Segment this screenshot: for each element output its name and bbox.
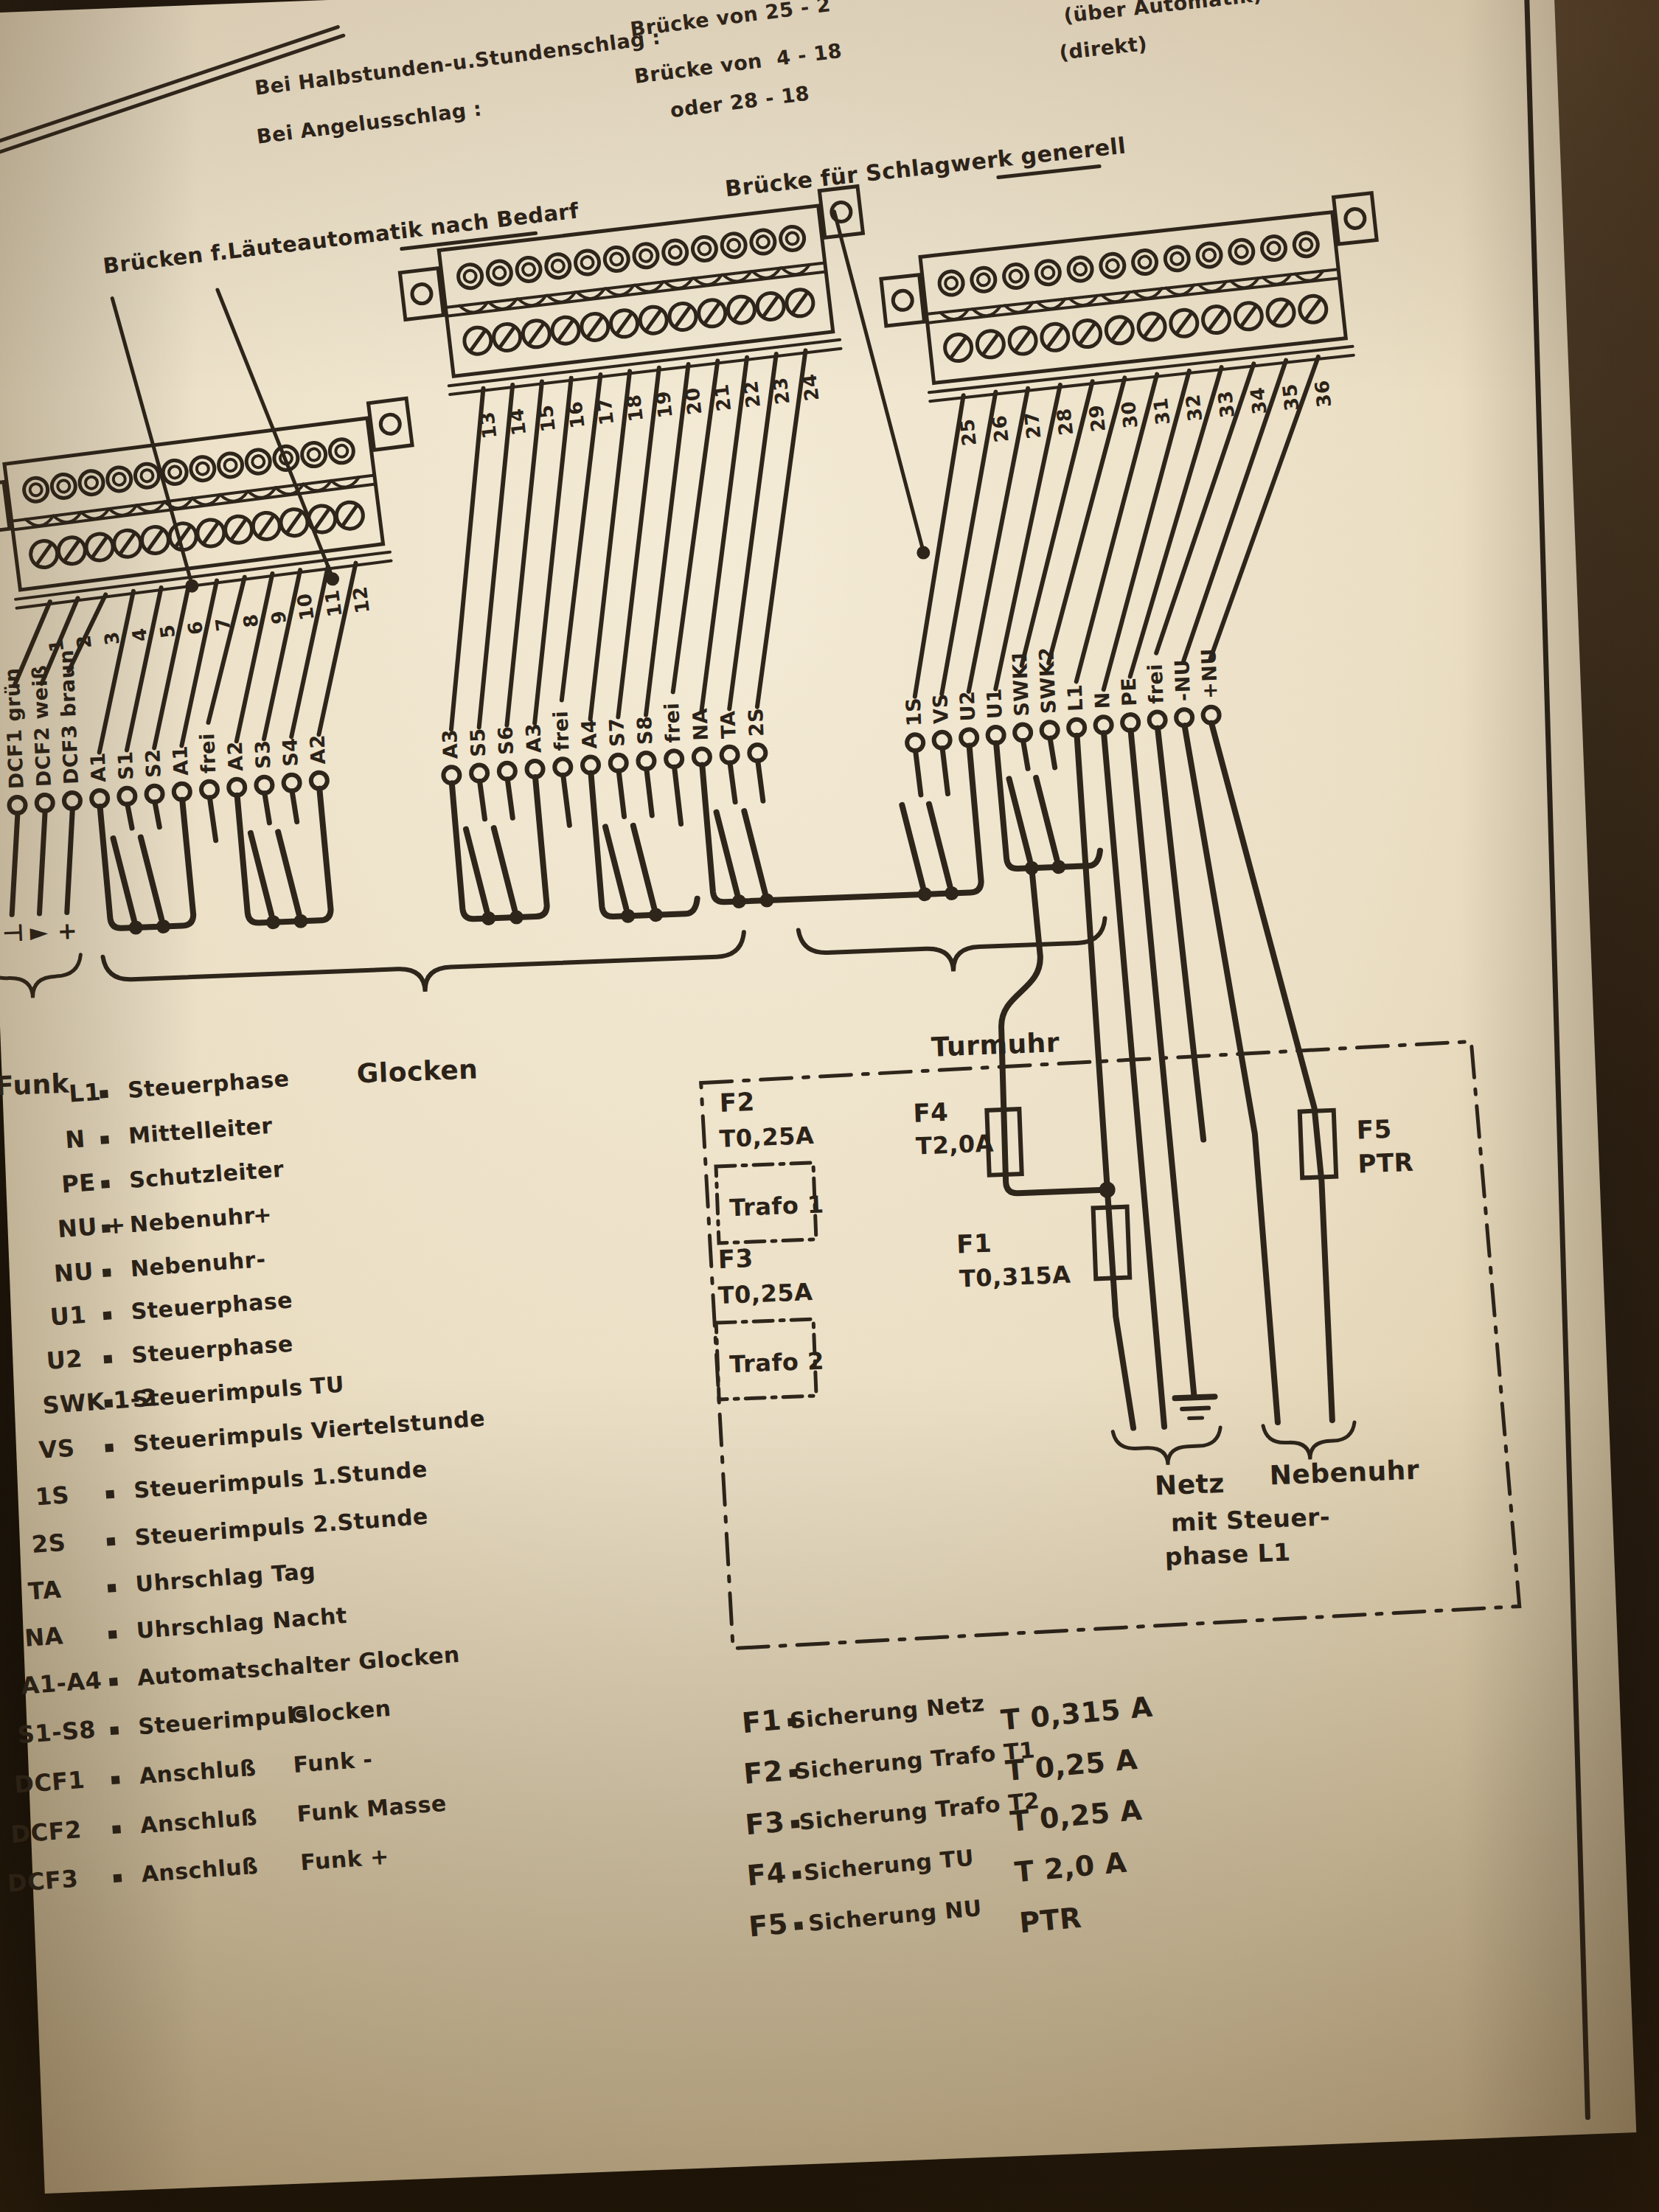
photo-of-wiring-diagram: 1234567891011121314151617181920212223242… [0,0,1659,2212]
wiring-diagram: 1234567891011121314151617181920212223242… [0,0,1659,2212]
light-shading-overlay [0,0,1659,2212]
